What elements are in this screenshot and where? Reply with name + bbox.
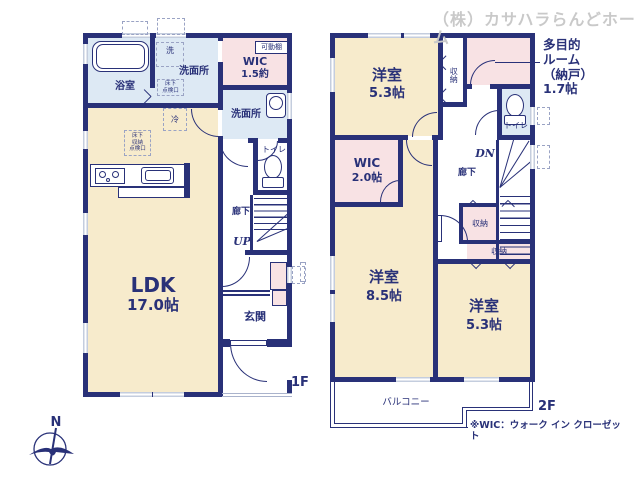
wall	[245, 250, 292, 255]
door-arc-front-door	[230, 343, 267, 382]
wall	[184, 163, 190, 198]
wall	[218, 33, 223, 41]
porch-line	[222, 393, 292, 394]
washroom-top-label: 洗面所	[168, 66, 220, 78]
compass: N	[20, 412, 82, 474]
stove-burner	[99, 171, 106, 178]
shoe-cabinet-lower	[272, 290, 287, 306]
wic-1f-name: WIC	[237, 56, 273, 69]
fridge-label: 冷	[171, 115, 179, 124]
ldk-fill	[88, 107, 218, 393]
stove-burner-small	[106, 178, 110, 182]
window	[83, 213, 88, 235]
washer-box: 洗	[156, 42, 184, 67]
floor-storage-label: 床下 収納 点検口	[129, 133, 146, 153]
bedroom-left-size: 8.5帖	[358, 290, 410, 305]
door-arc-toilet-2f	[475, 110, 499, 135]
eave-marker	[537, 107, 550, 125]
balcony-line-inner	[529, 382, 530, 408]
wall	[253, 190, 292, 195]
closet-top-label: 収納	[449, 58, 458, 92]
ldk-name: LDK	[113, 274, 193, 297]
wall	[222, 339, 230, 347]
floor1-label: 1F	[291, 376, 319, 391]
window	[396, 377, 430, 382]
window	[330, 256, 335, 290]
bedroom-left-name: 洋室	[358, 269, 410, 286]
ldk-size: 17.0帖	[113, 297, 193, 314]
wall	[330, 202, 403, 207]
toilet-bowl-2f	[506, 94, 524, 117]
window	[153, 392, 184, 397]
balcony-line	[330, 427, 468, 428]
wall	[463, 38, 467, 107]
stairs-dn-label: DN	[474, 148, 496, 161]
company-watermark: （株）カサハラらんどホーム	[433, 11, 640, 48]
entrance-step-line	[222, 294, 270, 296]
counter-lower	[118, 187, 190, 198]
washer-label: 洗	[166, 46, 174, 55]
window	[330, 294, 335, 322]
wic-2f-size: 2.0帖	[345, 172, 389, 185]
fridge-box: 冷	[163, 108, 187, 131]
balcony-label: バルコニー	[378, 398, 434, 409]
wall	[278, 138, 292, 143]
toilet-1f-label: トイレ	[258, 145, 290, 154]
eave-marker	[157, 18, 185, 35]
balcony-line-inner	[334, 423, 463, 424]
window	[368, 33, 401, 38]
bedroom-top-size: 5.3帖	[361, 87, 413, 102]
wall	[497, 135, 535, 140]
wic-2f-name: WIC	[345, 157, 389, 171]
floor-plan: （株）カサハラらんどホーム	[0, 0, 640, 480]
porch-line	[222, 396, 292, 397]
window	[83, 131, 88, 149]
compass-wings	[29, 447, 74, 455]
shoe-cabinet-upper	[270, 262, 287, 290]
wic-footnote: ※WIC：ウォーク イン クローゼット	[470, 421, 630, 443]
wall	[267, 339, 292, 347]
stairs-up-label: UP	[230, 236, 254, 249]
stairs-1f-treads	[254, 193, 287, 231]
underfloor-hatch-label: 床下 点検口	[162, 81, 179, 94]
underfloor-hatch-box: 床下 点検口	[157, 79, 184, 96]
window	[530, 145, 535, 169]
hallway-1f-label: 廊下	[224, 207, 258, 217]
toilet-tank-1f	[262, 177, 284, 188]
wall	[83, 103, 223, 108]
stove-burner	[112, 171, 119, 178]
balcony-line-inner	[334, 382, 335, 424]
wic-1f-size: 1.5約	[237, 69, 273, 81]
door-arc-hall-entrance	[222, 257, 250, 287]
eave-marker	[537, 145, 550, 169]
leader-line	[495, 62, 540, 63]
bedroom-top-name: 洋室	[361, 67, 413, 84]
eave-marker	[122, 21, 148, 35]
balcony-line	[466, 410, 467, 428]
window	[330, 58, 335, 92]
wall	[218, 85, 292, 90]
bedroom-right-size: 5.3帖	[458, 319, 510, 334]
compass-north-label: N	[51, 415, 62, 430]
wall	[433, 135, 438, 382]
eave-marker	[300, 262, 306, 282]
floor2-label: 2F	[538, 400, 566, 415]
hallway-2f-label: 廊下	[450, 168, 484, 178]
entrance-label: 玄関	[236, 311, 274, 324]
wall	[433, 259, 535, 264]
balcony-line	[532, 382, 533, 411]
window	[287, 93, 292, 119]
wall	[496, 140, 499, 262]
wall	[459, 203, 499, 207]
bathroom-label: 浴室	[105, 81, 145, 93]
balcony-line-inner	[462, 407, 463, 424]
bedroom-right-name: 洋室	[458, 298, 510, 315]
wall	[330, 135, 408, 140]
movable-shelf-box: 可動棚	[255, 41, 288, 54]
floor-storage-box: 床下 収納 点検口	[124, 130, 151, 156]
door-arc-washroom-right	[220, 141, 248, 167]
movable-shelf-label: 可動棚	[261, 43, 282, 51]
bathtub-inner	[96, 44, 145, 69]
window	[120, 392, 152, 397]
kitchen-sink-inner	[145, 170, 171, 181]
wall	[150, 38, 155, 88]
window	[530, 107, 535, 125]
balcony-line	[330, 382, 331, 428]
balcony-line	[466, 410, 533, 411]
toilet-2f-label: トイレ	[502, 121, 530, 130]
wash-basin-bowl	[269, 96, 283, 110]
wall	[83, 33, 292, 38]
window	[83, 44, 88, 64]
entrance-step-line	[222, 290, 270, 292]
closet-mid-label: 収納	[464, 219, 496, 228]
window	[83, 323, 88, 353]
balcony-line-inner	[462, 407, 530, 408]
closet-wide-label: 収納	[483, 247, 515, 256]
window	[464, 377, 499, 382]
washroom-right-label: 洗面所	[224, 109, 268, 121]
wall	[438, 38, 443, 140]
window	[404, 33, 430, 38]
